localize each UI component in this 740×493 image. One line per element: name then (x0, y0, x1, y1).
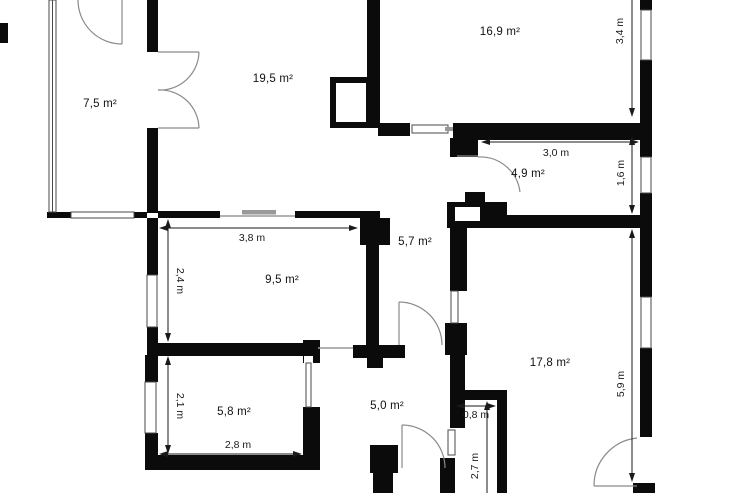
wall (450, 138, 478, 157)
window (145, 382, 156, 433)
wall (497, 393, 507, 493)
wall (360, 218, 390, 245)
dimension-label-3-4: 3,4 m (614, 18, 626, 45)
floorplan-svg: 3,8 m 2,4 m 2,1 m 2,8 m 3,4 m 3,0 m 1,6 … (0, 0, 740, 493)
window (448, 430, 455, 455)
dimension-label-2-8: 2,8 m (225, 439, 252, 451)
wall (158, 211, 220, 218)
wall (0, 23, 8, 43)
wall-notch (304, 356, 313, 363)
wall (295, 211, 380, 218)
room-label-inner-hall: 5,0 m² (370, 400, 404, 412)
window (641, 297, 651, 348)
window (641, 10, 651, 60)
wall (145, 355, 158, 382)
chimney-inner (336, 83, 366, 122)
wall (640, 0, 652, 10)
room-label-room-bottom-right: 17,8 m² (530, 357, 570, 369)
window (412, 125, 448, 133)
dimension-label-3-8: 3,8 m (239, 232, 266, 244)
wall (134, 212, 147, 218)
wall (147, 343, 318, 356)
wall (370, 445, 398, 473)
wall (373, 473, 393, 493)
wall (353, 345, 405, 358)
wall (303, 407, 320, 470)
room-label-room-bottom-left: 5,8 m² (217, 406, 251, 418)
wall (640, 60, 652, 157)
window (641, 157, 651, 193)
dimension-label-2-7: 2,7 m (469, 453, 481, 480)
room-label-room-small-right: 4,9 m² (511, 168, 545, 180)
opening-mark (445, 127, 453, 131)
wall (450, 228, 467, 291)
wall (465, 192, 485, 202)
dimension-label-5-9: 5,9 m (615, 371, 627, 398)
room-label-winter-garden: 7,5 m² (83, 98, 117, 110)
window (147, 275, 157, 327)
wall (633, 483, 655, 493)
window (71, 212, 134, 218)
wall (367, 358, 383, 368)
window (451, 291, 458, 323)
wall (440, 458, 455, 493)
room-label-room-middle-left: 9,5 m² (265, 274, 299, 286)
wall (445, 323, 467, 355)
wall (147, 0, 158, 52)
dimension-label-2-1: 2,1 m (174, 393, 186, 420)
wall (147, 218, 158, 275)
duct-inner (455, 207, 480, 221)
wall (366, 245, 379, 345)
wall (147, 128, 158, 213)
wall (640, 193, 652, 297)
dimension-label-1-6: 1,6 m (615, 160, 627, 187)
room-label-living-room: 19,5 m² (253, 73, 293, 85)
wall (640, 348, 652, 437)
wall (453, 123, 652, 140)
sliding-door (242, 210, 276, 215)
dimension-label-3-0: 3,0 m (543, 147, 570, 159)
wall (507, 215, 652, 228)
wall (145, 455, 320, 470)
room-label-hallway: 5,7 m² (398, 236, 432, 248)
wall (47, 212, 71, 218)
room-label-room-top-right: 16,9 m² (480, 26, 520, 38)
wall (378, 123, 410, 136)
dimension-label-0-8: 0,8 m (463, 409, 490, 421)
window (306, 363, 311, 407)
dimension-label-2-4: 2,4 m (174, 268, 186, 295)
